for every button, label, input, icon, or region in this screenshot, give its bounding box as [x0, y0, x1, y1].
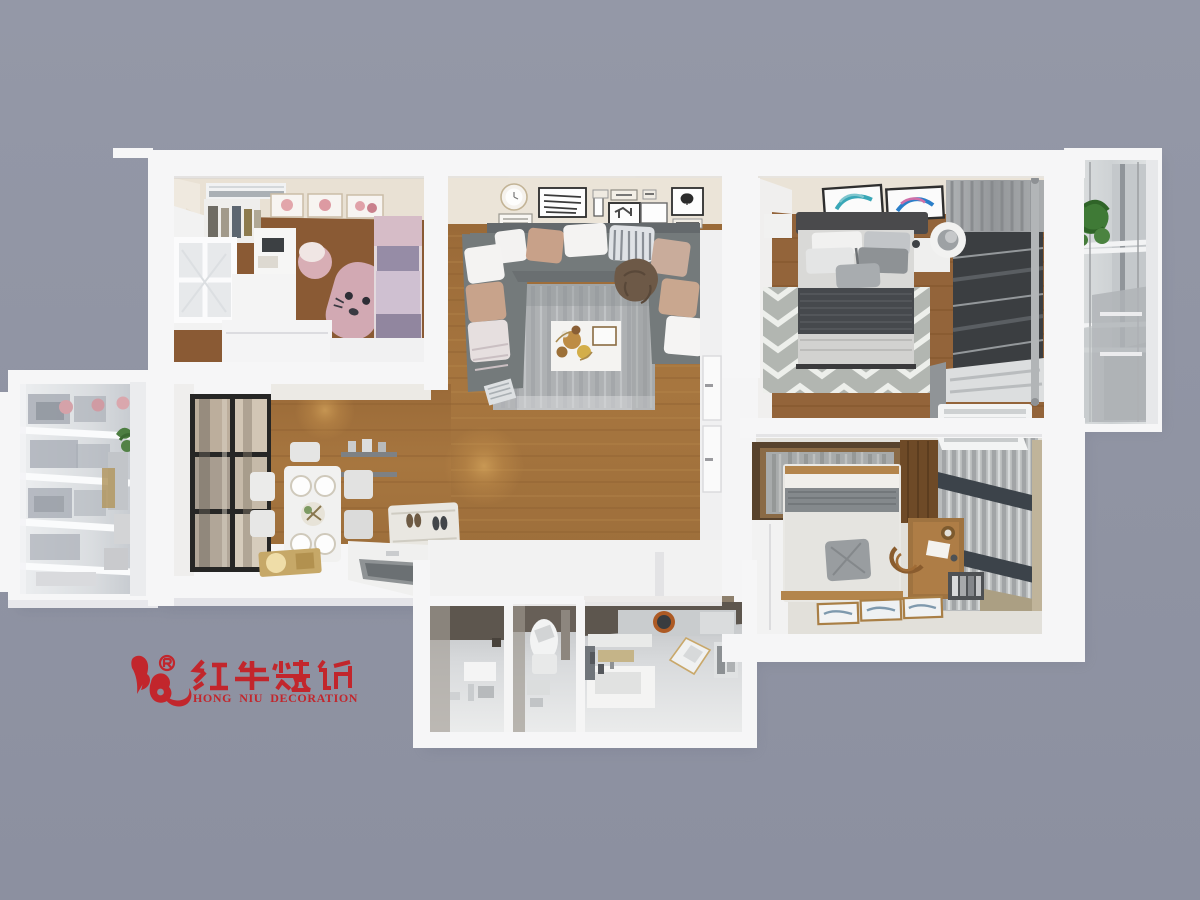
svg-text:HONG NIU DECORATION: HONG NIU DECORATION [193, 691, 358, 705]
